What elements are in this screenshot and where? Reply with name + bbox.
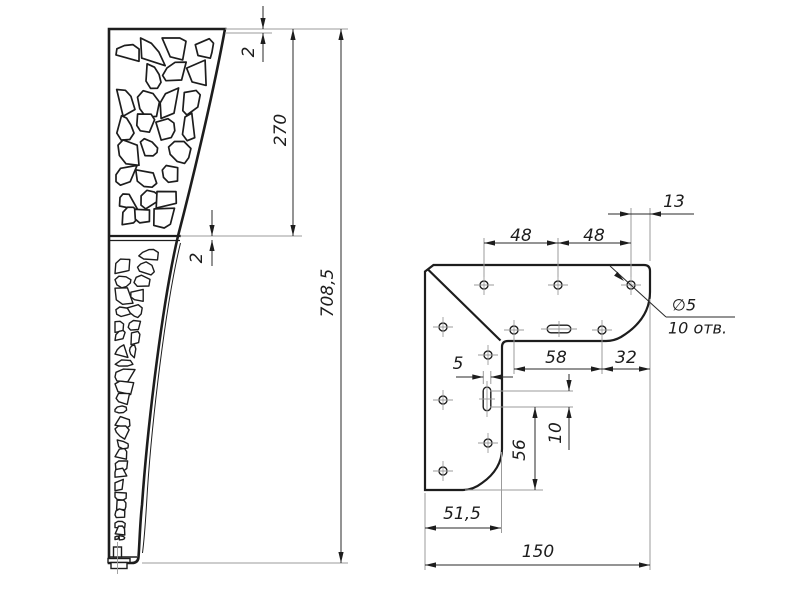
voronoi-cell [115,259,130,274]
dim-label-56: 56 [510,439,530,461]
voronoi-cell [183,113,195,141]
dimension-arrowhead [425,525,436,530]
dimension-arrowhead [209,240,214,251]
voronoi-cell [117,500,126,510]
dim-label-total-height: 708,5 [318,269,338,318]
voronoi-cell [115,536,119,539]
voronoi-cell [162,166,177,183]
dim-label-51-5: 51,5 [443,504,481,524]
voronoi-cell [115,406,127,413]
voronoi-cell [139,249,159,260]
dim-label-58: 58 [545,348,567,368]
voronoi-cell [116,165,137,185]
dimension-arrowhead [209,225,214,236]
foot-bolt-nut [111,563,127,569]
dim-label-48-left: 48 [510,226,532,246]
voronoi-cell [187,60,207,85]
voronoi-cell [169,142,191,164]
voronoi-cell [115,276,131,288]
dim-label-32: 32 [615,348,637,368]
voronoi-cell [141,38,166,66]
voronoi-cell [137,114,155,132]
voronoi-cell [115,479,123,490]
dim-label-thickness-top: 2 [239,47,259,58]
voronoi-cell [116,45,139,62]
voronoi-cell [115,381,134,395]
dimension-arrowhead [591,366,602,371]
voronoi-cell [117,90,135,117]
dimension-arrowhead [650,211,661,216]
voronoi-cell [156,119,175,140]
dimension-arrowhead [491,374,502,379]
voronoi-cell [115,492,126,500]
voronoi-cell [134,275,150,286]
voronoi-cell [138,262,155,275]
dim-label-270: 270 [271,114,291,146]
voronoi-cell [136,170,157,187]
dim-label-10: 10 [546,422,566,444]
note-hole-count: 10 отв. [668,319,727,338]
dimension-arrowhead [338,29,343,40]
voronoi-cell [130,345,136,358]
left-view-leg [108,29,225,574]
dimension-graphics [142,6,735,570]
voronoi-cell [195,39,213,59]
voronoi-cell [156,192,176,209]
voronoi-cell [146,64,161,89]
technical-drawing-canvas: 2 270 2 708,5 48 48 13 ∅5 10 отв. 58 32 … [0,0,800,600]
voronoi-cell [115,360,133,366]
voronoi-cell [117,116,134,140]
dimension-arrowhead [566,380,571,391]
voronoi-cell [131,289,143,301]
dimension-labels: 2 270 2 708,5 48 48 13 ∅5 10 отв. 58 32 … [187,47,727,562]
dimension-arrowhead [514,366,525,371]
voronoi-cell [116,393,129,404]
voronoi-cell [115,345,128,358]
dim-label-150: 150 [522,542,554,562]
voronoi-pattern [115,38,214,540]
dimension-arrowhead [260,18,265,29]
bracket-fold-line [428,270,501,341]
voronoi-cell [160,88,178,118]
voronoi-cell [135,209,150,223]
dim-label-5: 5 [453,354,464,374]
dimension-arrowhead [532,407,537,418]
dimension-arrowhead [290,225,295,236]
dimension-arrowhead [620,240,631,245]
voronoi-cell [154,208,175,228]
dimension-arrowhead [547,240,558,245]
dimension-arrowhead [472,374,483,379]
note-hole-diameter: ∅5 [672,296,696,315]
voronoi-cell [127,305,142,318]
dimension-arrowhead [566,407,571,418]
leg-flange-edge [143,243,181,553]
voronoi-cell [162,38,186,60]
dimension-arrowhead [602,366,613,371]
voronoi-cell [117,440,128,449]
voronoi-cell [163,62,187,81]
dimension-arrowhead [260,33,265,44]
foot-bolt [108,542,130,574]
dimension-arrowhead [490,525,501,530]
voronoi-cell [115,369,135,382]
dimension-arrowhead [614,272,626,283]
voronoi-cell [183,90,200,115]
dimension-arrowhead [290,29,295,40]
dim-label-13: 13 [663,192,685,212]
dim-label-thickness-joint: 2 [187,253,207,264]
dim-label-48-right: 48 [583,226,605,246]
voronoi-cell [115,449,127,460]
voronoi-cell [140,139,157,156]
voronoi-cell [128,321,140,331]
voronoi-cell [131,331,140,344]
dimension-arrowhead [639,366,650,371]
drawing-sheet: 2 270 2 708,5 48 48 13 ∅5 10 отв. 58 32 … [0,0,800,600]
voronoi-cell [115,426,129,439]
dimension-arrowhead [425,562,436,567]
voronoi-cell [115,509,125,518]
dimension-arrowhead [639,562,650,567]
dimension-arrowhead [338,552,343,563]
dimension-arrowhead [620,211,631,216]
dimension-arrowhead [484,240,495,245]
voronoi-cell [119,536,125,540]
dimension-arrowhead [532,479,537,490]
dimension-arrowhead [558,240,569,245]
voronoi-cell [118,140,139,165]
